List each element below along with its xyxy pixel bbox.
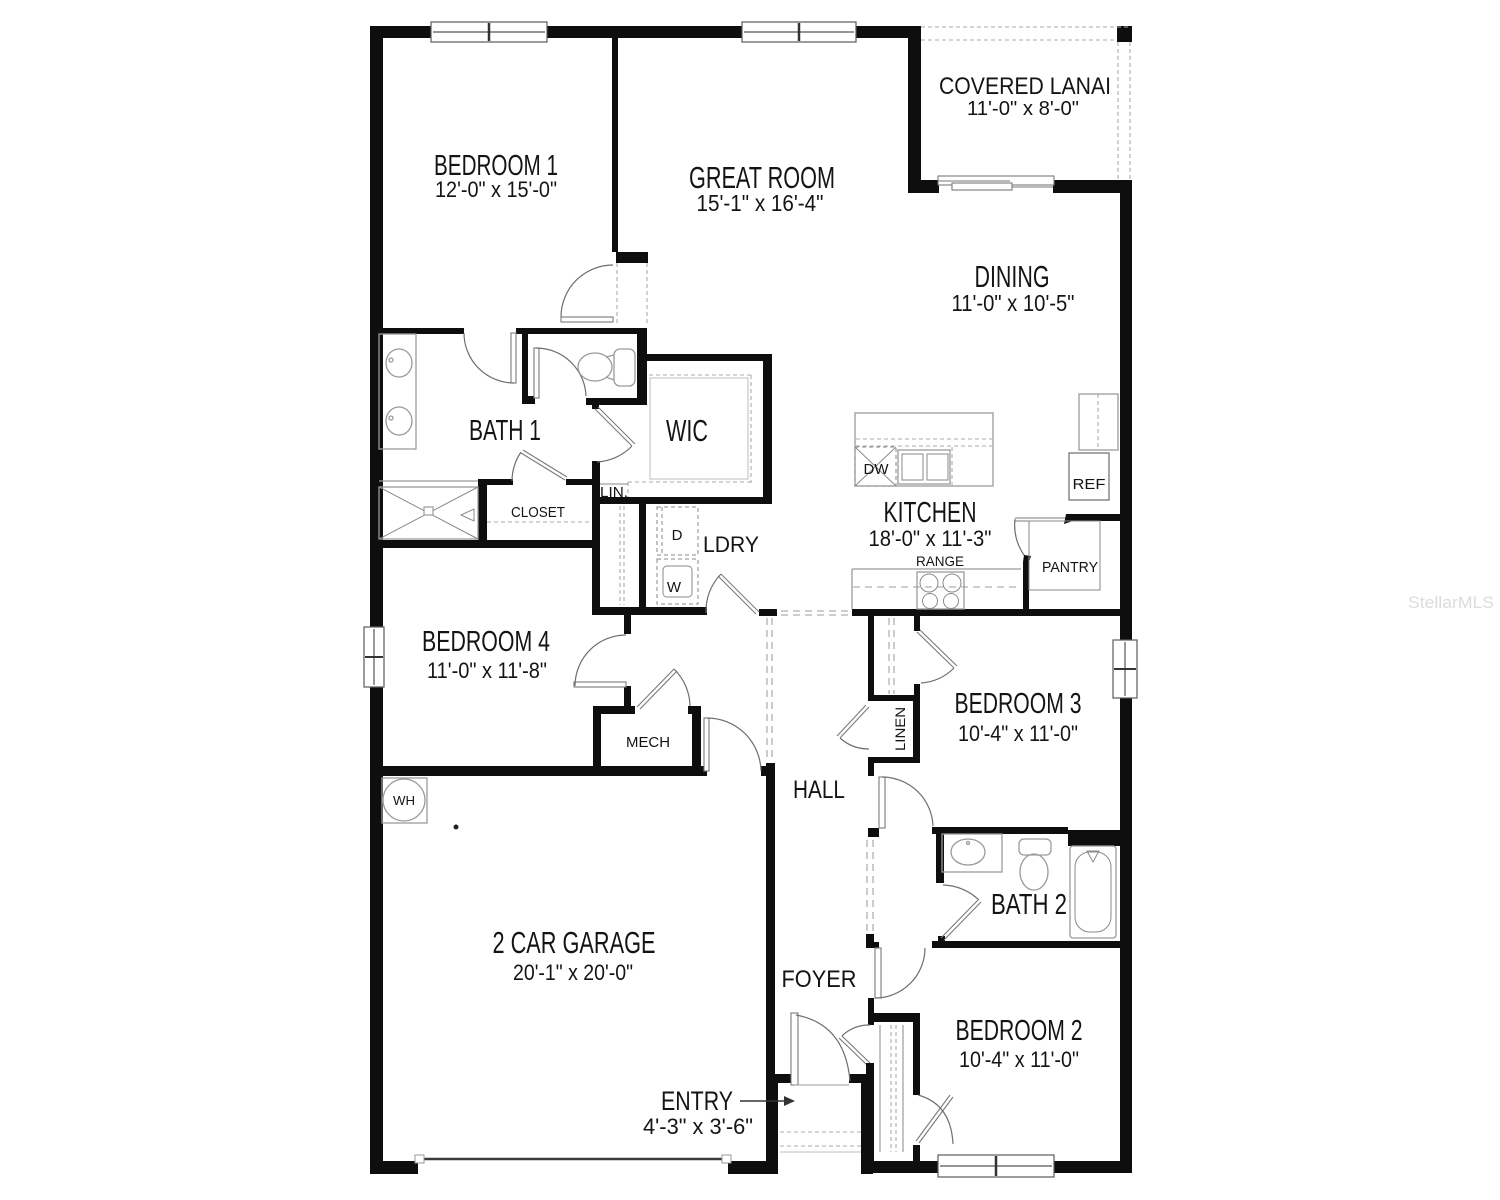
svg-text:REF: REF — [1073, 476, 1106, 493]
svg-text:PANTRY: PANTRY — [1042, 559, 1098, 576]
svg-text:LIN.: LIN. — [600, 484, 628, 501]
svg-text:StellarMLS: StellarMLS — [1408, 593, 1494, 612]
svg-text:BEDROOM 4: BEDROOM 4 — [422, 626, 550, 658]
svg-text:BATH 1: BATH 1 — [469, 415, 541, 447]
svg-text:LDRY: LDRY — [703, 532, 759, 557]
svg-text:D: D — [672, 527, 683, 544]
svg-text:FOYER: FOYER — [782, 966, 857, 993]
svg-text:RANGE: RANGE — [916, 553, 964, 569]
svg-text:WIC: WIC — [666, 413, 708, 448]
svg-text:CLOSET: CLOSET — [511, 504, 565, 521]
svg-text:W: W — [667, 579, 682, 596]
svg-text:LINEN: LINEN — [892, 707, 908, 751]
svg-text:2 CAR GARAGE: 2 CAR GARAGE — [493, 925, 656, 960]
svg-text:18'-0" x 11'-3": 18'-0" x 11'-3" — [869, 526, 992, 551]
svg-text:KITCHEN: KITCHEN — [884, 497, 977, 529]
svg-text:ENTRY: ENTRY — [661, 1086, 733, 1116]
svg-text:WH: WH — [393, 793, 415, 808]
svg-text:DW: DW — [864, 461, 890, 478]
svg-text:10'-4" x 11'-0": 10'-4" x 11'-0" — [958, 721, 1078, 746]
svg-text:15'-1" x 16'-4": 15'-1" x 16'-4" — [697, 190, 824, 216]
svg-text:11'-0" x 11'-8": 11'-0" x 11'-8" — [427, 658, 547, 683]
svg-text:MECH: MECH — [626, 734, 670, 751]
svg-text:11'-0" x 10'-5": 11'-0" x 10'-5" — [952, 290, 1075, 316]
svg-text:12'-0" x 15'-0": 12'-0" x 15'-0" — [435, 177, 557, 202]
svg-text:COVERED LANAI: COVERED LANAI — [939, 73, 1111, 100]
svg-text:20'-1" x 20'-0": 20'-1" x 20'-0" — [513, 960, 633, 985]
svg-text:4'-3" x 3'-6": 4'-3" x 3'-6" — [643, 1114, 753, 1139]
svg-text:11'-0" x 8'-0": 11'-0" x 8'-0" — [967, 98, 1079, 120]
svg-text:DINING: DINING — [975, 259, 1050, 294]
svg-text:BEDROOM 3: BEDROOM 3 — [955, 688, 1082, 720]
svg-text:BATH 2: BATH 2 — [991, 889, 1067, 921]
svg-text:10'-4" x 11'-0": 10'-4" x 11'-0" — [959, 1047, 1079, 1072]
svg-text:BEDROOM 2: BEDROOM 2 — [956, 1015, 1083, 1047]
svg-text:HALL: HALL — [793, 776, 845, 804]
